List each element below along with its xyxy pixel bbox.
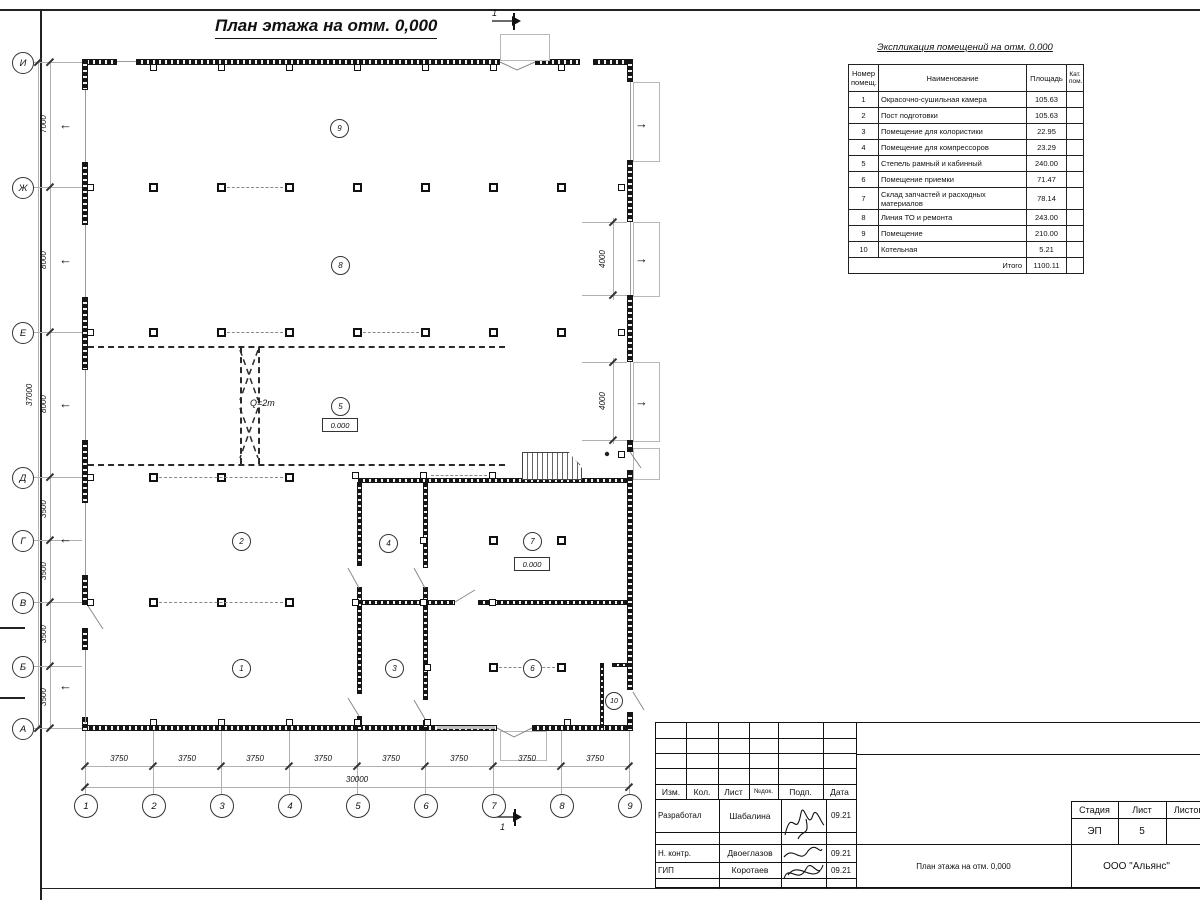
room-name-cell: Линия ТО и ремонта (879, 210, 1027, 226)
pilaster (618, 329, 625, 336)
room-name-cell: Помещение (879, 226, 1027, 242)
dim-line (50, 62, 51, 728)
pilaster (87, 184, 94, 191)
table-row: 9Помещение210.00 (849, 226, 1084, 242)
wall-segment (478, 600, 633, 605)
crane-rail-dashed-line (240, 347, 242, 464)
explication-table: Номер помещ. Наименование Площадь Кат. п… (848, 64, 1084, 274)
dim-label: 3500 (39, 614, 48, 654)
room-num-cell: 3 (849, 124, 879, 140)
pilaster (286, 64, 293, 71)
room-num-cell: 10 (849, 242, 879, 258)
dim-total-label: 37000 (25, 373, 34, 417)
dim-label: 3750 (575, 754, 615, 763)
axis-bubble-row: И (12, 52, 34, 74)
room-number: 10 (605, 692, 623, 710)
column (557, 663, 566, 672)
room-cat-cell (1067, 258, 1084, 274)
axis-bubble-row: В (12, 592, 34, 614)
column (353, 183, 362, 192)
dim-label: 3750 (439, 754, 479, 763)
room-number: 5 (331, 397, 350, 416)
room-cat-cell (1067, 108, 1084, 124)
dim-label: 3500 (39, 551, 48, 591)
room-name-cell: Склад запчастей и расходных материалов (879, 188, 1027, 210)
tb-col-kol: Кол. (686, 784, 718, 799)
dim-label: 3750 (99, 754, 139, 763)
room-cat-cell (1067, 172, 1084, 188)
pilaster (420, 472, 427, 479)
gate-segment (437, 726, 495, 729)
room-area-cell: 5.21 (1027, 242, 1067, 258)
exit-arrow-left-icon: ← (59, 532, 72, 545)
tb-sheet-value: 5 (1118, 818, 1166, 844)
axis-bubble-row: Б (12, 656, 34, 678)
wall-segment (358, 600, 455, 605)
dim-line (613, 218, 614, 300)
tb-date: 09.21 (826, 844, 856, 862)
pilaster (490, 64, 497, 71)
column (557, 328, 566, 337)
room-area-cell: 243.00 (1027, 210, 1067, 226)
total-label-cell: Итого (849, 258, 1027, 274)
extension-line (32, 666, 82, 667)
col-header-name: Наименование (879, 65, 1027, 92)
window-line (630, 362, 631, 440)
column-tie-dashed (159, 602, 283, 603)
room-area-cell: 210.00 (1027, 226, 1067, 242)
titleblock-line (656, 738, 856, 739)
axis-bubble-col: 5 (346, 794, 370, 818)
total-value-cell: 1100.11 (1027, 258, 1067, 274)
tb-col-list: Лист (718, 784, 749, 799)
exit-arrow-right-icon: → (635, 117, 648, 130)
room-cat-cell (1067, 188, 1084, 210)
exit-arrow-left-icon: ← (59, 397, 72, 410)
column (285, 473, 294, 482)
room-area-cell: 22.95 (1027, 124, 1067, 140)
column-tie-dashed (159, 477, 283, 478)
pilaster (87, 474, 94, 481)
wall-segment (82, 59, 88, 90)
tb-col-ndok: №док. (749, 784, 778, 799)
window-line (85, 650, 86, 723)
table-total-row: Итого1100.11 (849, 258, 1084, 274)
pilaster (489, 599, 496, 606)
room-name-cell: Окрасочно-сушильная камера (879, 92, 1027, 108)
exit-arrow-left-icon: ← (59, 253, 72, 266)
pilaster (352, 472, 359, 479)
tb-doc-title: План этажа на отм. 0,000 (856, 844, 1071, 889)
column (149, 473, 158, 482)
column (149, 328, 158, 337)
wall-segment (357, 482, 362, 566)
table-row: 2Пост подготовки105.63 (849, 108, 1084, 124)
room-cat-cell (1067, 226, 1084, 242)
extension-line (582, 362, 627, 363)
axis-bubble-row: А (12, 718, 34, 740)
pilaster (87, 329, 94, 336)
window-line (117, 61, 136, 62)
titleblock-line (656, 768, 856, 769)
column (149, 598, 158, 607)
col-header-cat: Кат. пом. (1067, 65, 1084, 92)
exit-arrow-left-icon: ← (59, 118, 72, 131)
room-num-cell: 5 (849, 156, 879, 172)
wall-segment (532, 725, 633, 731)
room-area-cell: 23.29 (1027, 140, 1067, 156)
tb-company: ООО "Альянс" (1071, 844, 1200, 889)
table-row: 10Котельная5.21 (849, 242, 1084, 258)
crane-bay-dashed-line (88, 346, 505, 348)
tb-name: Шабалина (719, 799, 781, 832)
room-number: 8 (331, 256, 350, 275)
column (217, 328, 226, 337)
table-row: 5Степель рамный и кабинный240.00 (849, 156, 1084, 172)
room-num-cell: 4 (849, 140, 879, 156)
room-num-cell: 9 (849, 226, 879, 242)
room-area-cell: 78.14 (1027, 188, 1067, 210)
room-area-cell: 105.63 (1027, 92, 1067, 108)
window-line (85, 90, 86, 162)
room-name-cell: Помещение для колористики (879, 124, 1027, 140)
dim-label: 3500 (39, 489, 48, 529)
signature-icon (782, 801, 826, 843)
room-name-cell: Помещение для компрессоров (879, 140, 1027, 156)
tb-role: Разработал (658, 799, 718, 832)
column (489, 328, 498, 337)
pilaster (618, 184, 625, 191)
dim-line (613, 358, 614, 444)
dim-label: 8000 (39, 240, 48, 280)
column-tie-dashed (227, 187, 283, 188)
room-num-cell: 6 (849, 172, 879, 188)
wall-segment (82, 162, 88, 225)
axis-bubble-col: 3 (210, 794, 234, 818)
crane-bay-dashed-line (88, 464, 505, 466)
column (489, 183, 498, 192)
axis-bubble-col: 8 (550, 794, 574, 818)
room-number: 1 (232, 659, 251, 678)
axis-bubble-col: 1 (74, 794, 98, 818)
tb-col-izm: Изм. (656, 784, 686, 799)
room-name-cell: Степель рамный и кабинный (879, 156, 1027, 172)
extension-line (32, 187, 82, 188)
axis-bubble-col: 4 (278, 794, 302, 818)
tb-sheets-label: Листов (1166, 801, 1200, 818)
tb-role: Н. контр. (658, 844, 718, 862)
gate-apron (500, 34, 550, 61)
window-line (630, 82, 631, 160)
room-number: 4 (379, 534, 398, 553)
tb-col-podp: Подп. (778, 784, 823, 799)
tb-role: ГИП (658, 862, 718, 878)
pilaster (286, 719, 293, 726)
table-row: 6Помещение приемки71.47 (849, 172, 1084, 188)
dim-label: 3750 (167, 754, 207, 763)
explication-title: Экспликация помещений на отм. 0.000 (840, 42, 1090, 53)
pilaster (420, 537, 427, 544)
dim-label: 4000 (598, 380, 607, 422)
wall-segment (627, 470, 633, 690)
dim-label: 3750 (371, 754, 411, 763)
room-area-cell: 105.63 (1027, 108, 1067, 124)
room-number: 7 (523, 532, 542, 551)
window-line (85, 503, 86, 575)
dim-label: 4000 (598, 238, 607, 280)
pilaster (352, 599, 359, 606)
pilaster (150, 64, 157, 71)
column (489, 663, 498, 672)
tb-name: Двоеглазов (719, 844, 781, 862)
pilaster (420, 599, 427, 606)
tb-stage-label: Стадия (1071, 801, 1118, 818)
room-number: 3 (385, 659, 404, 678)
pilaster (489, 472, 496, 479)
pilaster (422, 64, 429, 71)
pilaster (218, 64, 225, 71)
table-row: 1Окрасочно-сушильная камера105.63 (849, 92, 1084, 108)
room-cat-cell (1067, 124, 1084, 140)
axis-bubble-row: Е (12, 322, 34, 344)
dim-label: 3500 (39, 677, 48, 717)
column (421, 183, 430, 192)
exit-arrow-right-icon: → (635, 252, 648, 265)
room-cat-cell (1067, 156, 1084, 172)
wall-segment (627, 295, 633, 362)
column-tie-dashed (363, 332, 419, 333)
gate-apron (633, 448, 660, 480)
exit-arrow-right-icon: → (635, 395, 648, 408)
room-num-cell: 7 (849, 188, 879, 210)
crane-capacity-label: Q=2т (250, 398, 275, 408)
col-header-num: Номер помещ. (849, 65, 879, 92)
table-row: 4Помещение для компрессоров23.29 (849, 140, 1084, 156)
tb-sheet-label: Лист (1118, 801, 1166, 818)
column (217, 183, 226, 192)
extension-line (32, 477, 82, 478)
room-number: 9 (330, 119, 349, 138)
extension-line (582, 440, 627, 441)
room-num-cell: 1 (849, 92, 879, 108)
tb-stage-value: ЭП (1071, 818, 1118, 844)
pilaster (424, 664, 431, 671)
column-tie-dashed (227, 332, 283, 333)
room-cat-cell (1067, 210, 1084, 226)
drawing-sheet: План этажа на отм. 0,000 (0, 0, 1200, 900)
titleblock-line (656, 878, 856, 879)
dim-label: 3750 (303, 754, 343, 763)
window-line (85, 370, 86, 440)
axis-bubble-col: 7 (482, 794, 506, 818)
table-row: 8Линия ТО и ремонта243.00 (849, 210, 1084, 226)
col-header-area: Площадь (1027, 65, 1067, 92)
column (285, 183, 294, 192)
room-cat-cell (1067, 242, 1084, 258)
section-number-bottom: 1 (500, 822, 505, 832)
pilaster (564, 719, 571, 726)
column (557, 536, 566, 545)
elevation-mark: 0.000 (514, 557, 550, 571)
column (285, 328, 294, 337)
elevation-mark: 0.000 (322, 418, 358, 432)
extension-line (32, 728, 82, 729)
column (285, 598, 294, 607)
axis-bubble-col: 2 (142, 794, 166, 818)
titleblock-line (656, 753, 856, 754)
signature-icon (780, 841, 826, 887)
wall-segment (627, 712, 633, 731)
axis-bubble-row: Д (12, 467, 34, 489)
column (489, 536, 498, 545)
pilaster (150, 719, 157, 726)
room-name-cell: Пост подготовки (879, 108, 1027, 124)
tb-col-data: Дата (823, 784, 856, 799)
pilaster (354, 719, 361, 726)
room-num-cell: 2 (849, 108, 879, 124)
room-name-cell: Помещение приемки (879, 172, 1027, 188)
dim-label: 8000 (39, 384, 48, 424)
room-number: 2 (232, 532, 251, 551)
dim-label: 7000 (39, 104, 48, 144)
dim-label: 3750 (235, 754, 275, 763)
tb-date: 09.21 (826, 862, 856, 878)
pilaster (558, 64, 565, 71)
extension-line (32, 602, 82, 603)
room-area-cell: 240.00 (1027, 156, 1067, 172)
room-num-cell: 8 (849, 210, 879, 226)
pilaster (87, 599, 94, 606)
wall-segment (82, 628, 88, 650)
dim-label: 3750 (507, 754, 547, 763)
column (149, 183, 158, 192)
pilaster (354, 64, 361, 71)
extension-line (32, 62, 82, 63)
section-number-top: 1 (492, 8, 497, 18)
axis-bubble-row: Г (12, 530, 34, 552)
extension-line (32, 540, 82, 541)
dim-total-label: 30000 (337, 775, 377, 784)
axis-bubble-col: 9 (618, 794, 642, 818)
window-line (630, 222, 631, 295)
wall-segment (627, 59, 633, 82)
pilaster (424, 719, 431, 726)
wall-segment (627, 160, 633, 222)
room-cat-cell (1067, 140, 1084, 156)
titleblock-line (656, 832, 856, 833)
axis-bubble-col: 6 (414, 794, 438, 818)
table-row: 3Помещение для колористики22.95 (849, 124, 1084, 140)
wall-segment (136, 59, 500, 65)
column (353, 328, 362, 337)
wall-segment (423, 482, 428, 568)
room-number: 6 (523, 659, 542, 678)
window-line (85, 225, 86, 297)
wall-segment (82, 440, 88, 503)
pilaster (218, 719, 225, 726)
column (421, 328, 430, 337)
title-block: Изм. Кол. Лист №док. Подп. Дата Разработ… (655, 722, 1200, 888)
column-tie-dashed (431, 475, 487, 476)
tb-date: 09.21 (826, 799, 856, 832)
wall-segment (600, 663, 604, 731)
pilaster (618, 451, 625, 458)
table-row: 7Склад запчастей и расходных материалов7… (849, 188, 1084, 210)
titleblock-line (856, 754, 1200, 755)
tb-name: Коротаев (719, 862, 781, 878)
extension-line (582, 222, 627, 223)
exit-arrow-left-icon: ← (59, 679, 72, 692)
column (557, 183, 566, 192)
room-name-cell: Котельная (879, 242, 1027, 258)
extension-line (582, 295, 627, 296)
room-area-cell: 71.47 (1027, 172, 1067, 188)
room-cat-cell (1067, 92, 1084, 108)
axis-bubble-row: Ж (12, 177, 34, 199)
extension-line (32, 332, 82, 333)
